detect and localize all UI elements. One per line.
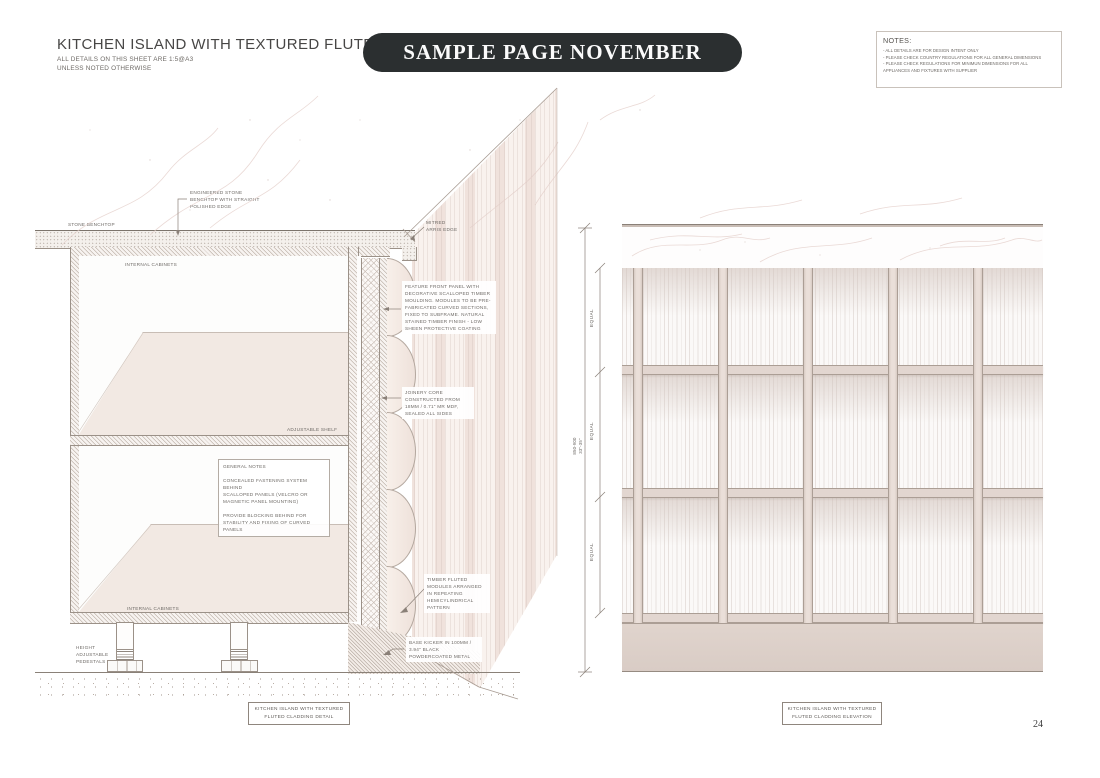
vertical-batten bbox=[888, 268, 898, 623]
pedestal-foot bbox=[221, 660, 258, 672]
overall-height-dimension: 850-900 33"-35" bbox=[572, 424, 584, 468]
label-base-kicker: BASE KICKER IN 100MM / 3.94" BLACK POWDE… bbox=[406, 637, 482, 662]
label-feature-front-panel: FEATURE FRONT PANEL WITH DECORATIVE SCAL… bbox=[402, 281, 496, 334]
pedestal-stem bbox=[230, 622, 248, 650]
sample-page-banner-label: SAMPLE PAGE NOVEMBER bbox=[403, 40, 701, 65]
detail-caption: KITCHEN ISLAND WITH TEXTURED FLUTED CLAD… bbox=[248, 702, 350, 725]
label-timber-fluted-modules: TIMBER FLUTED MODULES ARRANGED IN REPEAT… bbox=[424, 574, 490, 613]
label-internal-cabinets-bottom: INTERNAL CABINETS bbox=[127, 605, 179, 612]
general-notes-box: GENERAL NOTES CONCEALED FASTENING SYSTEM… bbox=[218, 459, 330, 537]
cabinet-bottom-panel bbox=[70, 612, 348, 624]
drawing-sheet: KITCHEN ISLAND WITH TEXTURED FLUTED CLAD… bbox=[0, 0, 1100, 778]
notes-item: - PLEASE CHECK COUNTRY REGULATIONS FOR A… bbox=[883, 55, 1055, 62]
label-joinery-core: JOINERY CORE CONSTRUCTED FROM 18MM / 0.7… bbox=[402, 387, 474, 419]
notes-title: NOTES: bbox=[883, 36, 1055, 45]
label-internal-cabinets-top: INTERNAL CABINETS bbox=[125, 261, 177, 268]
pedestal-adjuster bbox=[230, 650, 248, 660]
sample-page-banner: SAMPLE PAGE NOVEMBER bbox=[363, 33, 742, 72]
dimension-equal-label: EQUAL bbox=[590, 411, 600, 451]
pedestal-foot bbox=[107, 660, 143, 672]
pedestal-adjuster bbox=[116, 650, 134, 660]
elevation-caption: KITCHEN ISLAND WITH TEXTURED FLUTED CLAD… bbox=[782, 702, 882, 725]
pedestal-stem bbox=[116, 622, 134, 650]
label-mitred-arris-edge: MITRED ARRIS EDGE bbox=[426, 219, 457, 233]
vertical-batten bbox=[718, 268, 728, 623]
overall-height-in: 33"-35" bbox=[578, 424, 584, 468]
vertical-batten bbox=[973, 268, 983, 623]
scallop-section bbox=[387, 489, 416, 568]
label-adjustable-shelf: ADJUSTABLE SHELF bbox=[287, 426, 337, 433]
vertical-batten bbox=[633, 268, 643, 623]
page-number: 24 bbox=[1033, 719, 1043, 730]
sheet-scale-note-2: UNLESS NOTED OTHERWISE bbox=[57, 65, 151, 72]
label-stone-benchtop: STONE BENCHTOP bbox=[68, 221, 115, 228]
label-engineered-stone: ENGINEERED STONE BENCHTOP WITH STRAIGHT … bbox=[190, 189, 260, 210]
sheet-scale-note: ALL DETAILS ON THIS SHEET ARE 1:5@A3 bbox=[57, 56, 193, 63]
adjustable-shelf-panel bbox=[70, 435, 348, 446]
dimension-equal-label: EQUAL bbox=[590, 298, 600, 338]
scallop-section bbox=[387, 412, 416, 491]
floor-slab bbox=[35, 672, 520, 702]
notes-box: NOTES: - ALL DETAILS ARE FOR DESIGN INTE… bbox=[876, 31, 1062, 88]
vertical-batten bbox=[803, 268, 813, 623]
elevation-base-band bbox=[622, 623, 1043, 672]
dimension-equal-label: EQUAL bbox=[590, 532, 600, 572]
subframe-crosshatch bbox=[361, 258, 381, 642]
elevation-marble-band bbox=[622, 227, 1043, 268]
notes-item: - ALL DETAILS ARE FOR DESIGN INTENT ONLY bbox=[883, 48, 1055, 55]
notes-item: - PLEASE CHECK REGULATIONS FOR MINIMUN D… bbox=[883, 61, 1055, 74]
label-height-adjustable-pedestals: HEIGHT ADJUSTABLE PEDESTALS bbox=[76, 644, 108, 665]
